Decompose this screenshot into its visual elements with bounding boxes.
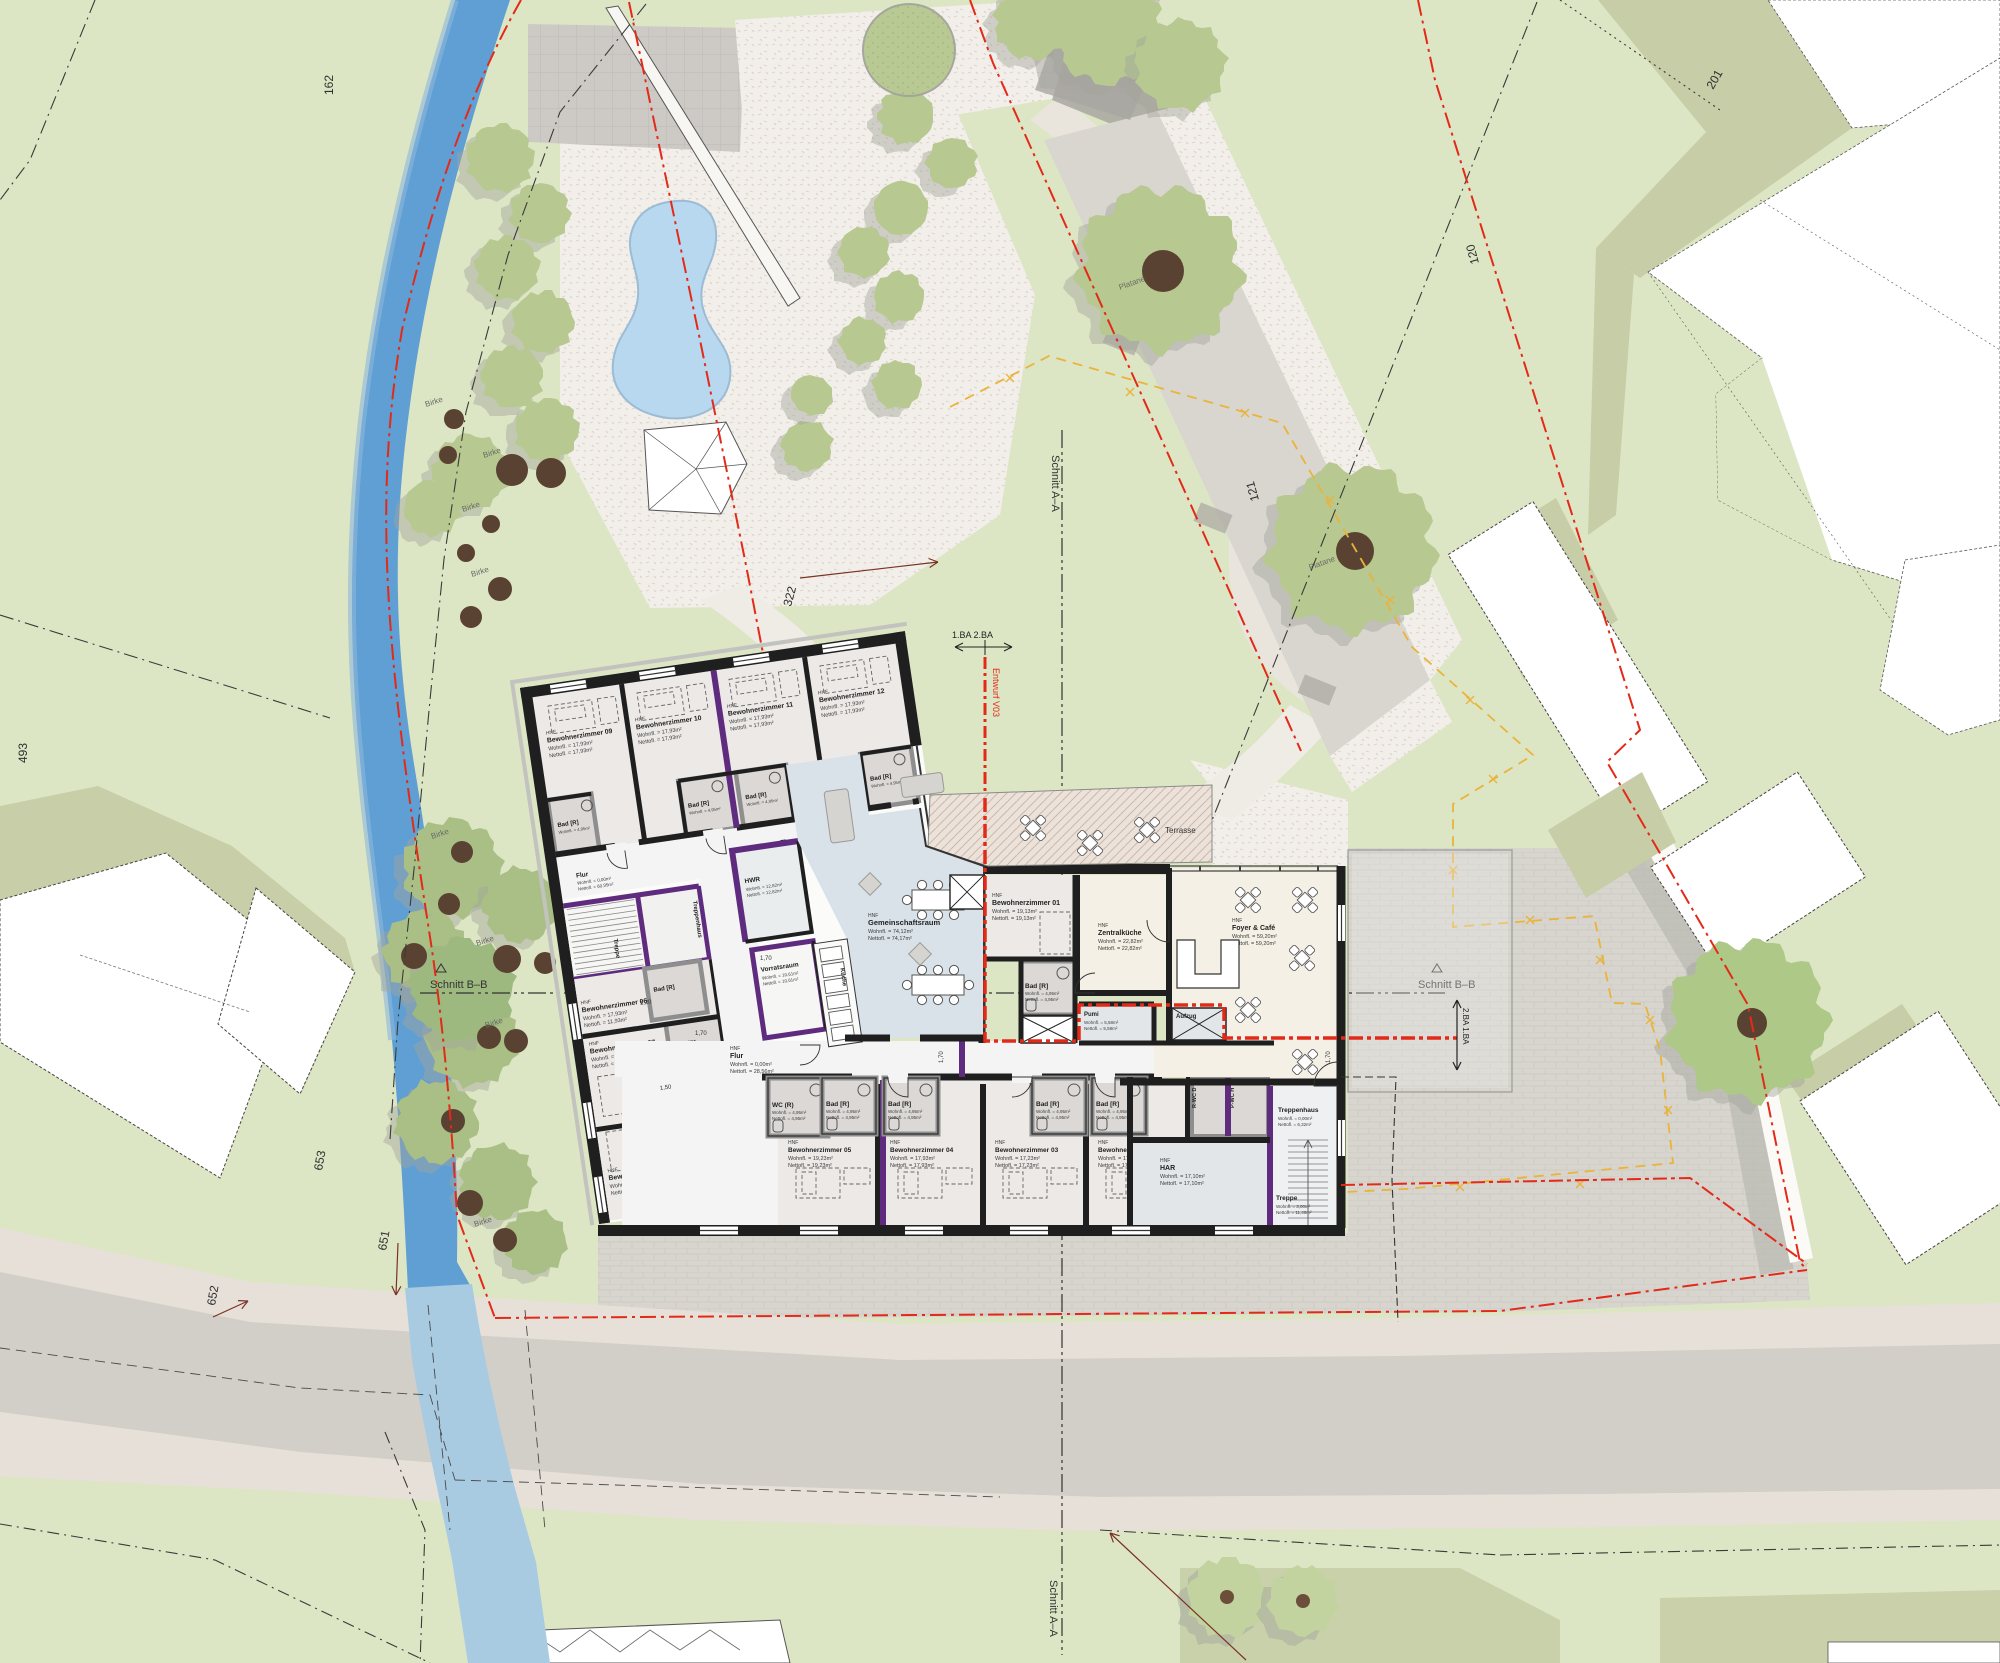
svg-text:HAR: HAR (1160, 1165, 1175, 1172)
svg-text:HNF: HNF (788, 1140, 798, 1146)
svg-text:Treppe: Treppe (1276, 1195, 1298, 1202)
svg-text:Nettofl. = 4,95m²: Nettofl. = 4,95m² (772, 1116, 806, 1121)
svg-text:Treppenhaus: Treppenhaus (1278, 1107, 1319, 1114)
svg-text:Nettofl. = 4,95m²: Nettofl. = 4,95m² (1025, 997, 1059, 1002)
svg-text:Bad [R]: Bad [R] (826, 1101, 849, 1108)
svg-text:1,70: 1,70 (760, 956, 772, 962)
svg-text:Wohnfl. = 4,95m²: Wohnfl. = 4,95m² (826, 1109, 861, 1114)
svg-text:Zentralküche: Zentralküche (1098, 930, 1142, 937)
svg-text:Wohnfl. = 0,00m²: Wohnfl. = 0,00m² (1278, 1116, 1313, 1121)
svg-text:HNF: HNF (1098, 923, 1108, 929)
svg-text:Bad [R]: Bad [R] (888, 1101, 911, 1108)
svg-text:Wohnfl. = 4,95m²: Wohnfl. = 4,95m² (888, 1109, 923, 1114)
svg-text:Nettofl. = 11,40m²: Nettofl. = 11,40m² (1276, 1210, 1312, 1215)
svg-text:Nettofl. = 4,95m²: Nettofl. = 4,95m² (1096, 1115, 1130, 1120)
svg-text:1.BA 2.BA: 1.BA 2.BA (952, 630, 993, 640)
svg-text:HNF: HNF (1160, 1158, 1170, 1164)
svg-text:Bad [R]: Bad [R] (1025, 983, 1048, 990)
svg-text:Wohnfl. = 19,13m²: Wohnfl. = 19,13m² (992, 909, 1037, 915)
svg-text:Wohnfl. = 59,20m²: Wohnfl. = 59,20m² (1232, 934, 1277, 940)
svg-text:WC (R): WC (R) (772, 1102, 794, 1109)
svg-text:Aufzug: Aufzug (1176, 1014, 1197, 1020)
svg-text:Wohnfl. = 4,95m²: Wohnfl. = 4,95m² (772, 1110, 807, 1115)
svg-text:Schnitt A–A: Schnitt A–A (1047, 1580, 1059, 1638)
svg-text:HNF: HNF (1232, 918, 1242, 924)
svg-text:Wohnfl. = 4,95m²: Wohnfl. = 4,95m² (1096, 1109, 1131, 1114)
svg-text:HNF: HNF (992, 893, 1002, 899)
svg-text:Nettofl. = 4,95m²: Nettofl. = 4,95m² (888, 1115, 922, 1120)
svg-text:Wohnfl. = 4,95m²: Wohnfl. = 4,95m² (1036, 1109, 1071, 1114)
svg-text:Terrasse: Terrasse (1165, 826, 1196, 835)
svg-text:HNF: HNF (1098, 1140, 1108, 1146)
svg-text:Wohnfl. = 4,95m²: Wohnfl. = 4,95m² (1025, 991, 1060, 996)
svg-text:Nettofl. = 6,32m²: Nettofl. = 6,32m² (1278, 1122, 1312, 1127)
svg-text:Bad [R]: Bad [R] (1036, 1101, 1059, 1108)
svg-text:Nettofl. = 19,13m²: Nettofl. = 19,13m² (992, 916, 1036, 922)
svg-text:Wohnfl. = 74,12m²: Wohnfl. = 74,12m² (868, 929, 913, 935)
svg-text:2.BA 1.BA: 2.BA 1.BA (1461, 1008, 1470, 1045)
svg-text:Nettofl. = 5,58m²: Nettofl. = 5,58m² (1084, 1026, 1118, 1031)
svg-text:Wohnfl. = 0,00m²: Wohnfl. = 0,00m² (730, 1062, 772, 1068)
svg-text:Bewohnerzimmer 04: Bewohnerzimmer 04 (890, 1147, 954, 1154)
svg-text:Schnitt B–B: Schnitt B–B (430, 979, 487, 991)
svg-text:493: 493 (16, 743, 30, 763)
svg-text:Wohnfl. = 5,58m²: Wohnfl. = 5,58m² (1084, 1020, 1119, 1025)
svg-text:HNF: HNF (730, 1046, 740, 1052)
svg-text:Wohnfl. = 19,23m²: Wohnfl. = 19,23m² (788, 1156, 833, 1162)
svg-text:Wohnfl. = 17,93m²: Wohnfl. = 17,93m² (890, 1156, 935, 1162)
svg-text:HNF: HNF (995, 1140, 1005, 1146)
svg-text:Foyer & Café: Foyer & Café (1232, 925, 1275, 932)
svg-text:Pumi: Pumi (1084, 1012, 1099, 1018)
svg-text:Wohnfl. = 17,10m²: Wohnfl. = 17,10m² (1160, 1174, 1205, 1180)
svg-text:HNF: HNF (890, 1140, 900, 1146)
svg-text:Schnitt A–A: Schnitt A–A (1049, 455, 1061, 513)
svg-text:Wohnfl. = 17,23m²: Wohnfl. = 17,23m² (995, 1156, 1040, 1162)
svg-text:Flur: Flur (730, 1053, 743, 1060)
svg-text:Nettofl. = 74,17m²: Nettofl. = 74,17m² (868, 936, 912, 942)
svg-text:Nettofl. = 22,82m²: Nettofl. = 22,82m² (1098, 946, 1142, 952)
svg-text:Gemeinschaftsraum: Gemeinschaftsraum (868, 918, 940, 927)
svg-text:1,70: 1,70 (695, 1031, 707, 1037)
svg-text:Nettofl. = 17,10m²: Nettofl. = 17,10m² (1160, 1181, 1204, 1187)
svg-text:Nettofl. = 4,95m²: Nettofl. = 4,95m² (826, 1115, 860, 1120)
svg-text:Bewohnerzimmer 05: Bewohnerzimmer 05 (788, 1147, 852, 1154)
svg-text:Nettofl. = 4,95m²: Nettofl. = 4,95m² (1036, 1115, 1070, 1120)
svg-text:Bewohnerzimmer 01: Bewohnerzimmer 01 (992, 900, 1060, 907)
svg-text:Entwurf V03: Entwurf V03 (991, 668, 1001, 717)
svg-text:Bewohnerzimmer 03: Bewohnerzimmer 03 (995, 1147, 1059, 1154)
svg-text:Bad [R]: Bad [R] (1096, 1101, 1119, 1108)
svg-text:1,70: 1,70 (1326, 1051, 1332, 1063)
svg-text:Wohnfl. = 22,82m²: Wohnfl. = 22,82m² (1098, 939, 1143, 945)
svg-text:Wohnfl. = 3,00m²: Wohnfl. = 3,00m² (1276, 1204, 1311, 1209)
svg-text:162: 162 (322, 75, 336, 95)
svg-text:R-WC D: R-WC D (1192, 1088, 1198, 1108)
svg-text:1,70: 1,70 (939, 1051, 945, 1063)
